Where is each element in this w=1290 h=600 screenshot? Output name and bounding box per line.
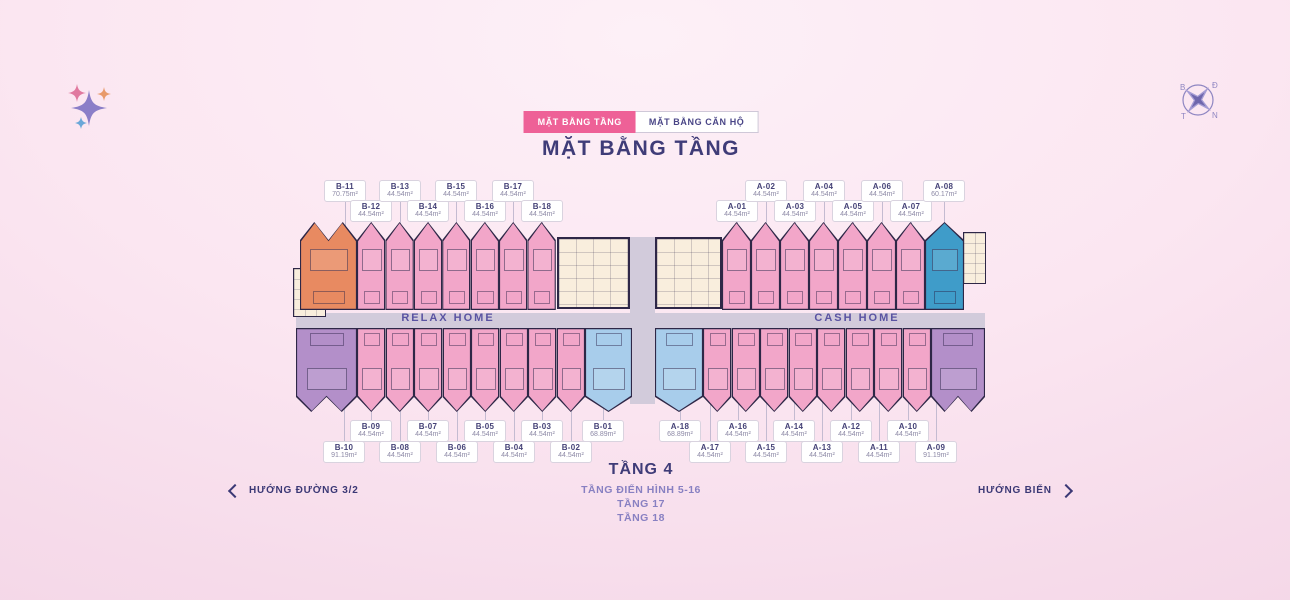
unit-area: 44.54m² [891,211,931,219]
unit-label-A-18[interactable]: A-1868.89m² [659,420,701,442]
unit-A-04[interactable] [809,222,838,310]
unit-fill [752,223,779,308]
unit-label-A-07[interactable]: A-0744.54m² [890,200,932,222]
unit-fill [761,329,787,410]
unit-label-A-12[interactable]: A-1244.54m² [830,420,872,442]
unit-fill [529,329,555,410]
label-leader-line [822,400,823,441]
unit-area: 91.19m² [324,452,364,460]
floor-line-18: TẦNG 18 [581,511,701,525]
unit-A-18[interactable] [655,328,703,412]
unit-fill [704,329,730,410]
unit-area: 91.19m² [916,452,956,460]
direction-sea-label: HƯỚNG BIỂN [978,485,1052,496]
unit-fill [656,329,702,410]
unit-B-13[interactable] [385,222,413,310]
current-floor-label: TẦNG 4 [581,461,701,479]
corridor-label-relax-home: RELAX HOME [401,312,494,324]
unit-area: 70.75m² [325,191,365,199]
tab-apartment-plan[interactable]: MẶT BẰNG CĂN HỘ [636,111,759,133]
unit-label-B-06[interactable]: B-0644.54m² [436,441,478,463]
unit-code: A-05 [833,202,873,211]
unit-code: A-14 [774,422,814,431]
unit-fill [810,223,837,308]
unit-code: A-01 [717,202,757,211]
floor-line-17: TẦNG 17 [581,497,701,511]
unit-fill [904,329,930,410]
unit-A-11[interactable] [874,328,903,412]
unit-code: B-05 [465,422,505,431]
unit-fill [301,223,356,308]
unit-fill [586,329,631,410]
floor-info: TẦNG 4 TẦNG ĐIỂN HÌNH 5-16 TẦNG 17 TẦNG … [581,461,701,525]
unit-code: B-18 [522,202,562,211]
unit-label-B-09[interactable]: B-0944.54m² [350,420,392,442]
unit-B-14[interactable] [414,222,442,310]
unit-code: A-16 [718,422,758,431]
unit-area: 44.54m² [380,452,420,460]
unit-code: A-13 [802,443,842,452]
unit-label-B-13[interactable]: B-1344.54m² [379,180,421,202]
unit-B-01[interactable] [585,328,632,412]
unit-area: 44.54m² [351,211,391,219]
unit-area: 44.54m² [862,191,902,199]
unit-B-12[interactable] [357,222,385,310]
direction-road: HƯỚNG ĐƯỜNG 3/2 [230,485,359,496]
unit-label-A-05[interactable]: A-0544.54m² [832,200,874,222]
unit-label-B-15[interactable]: B-1544.54m² [435,180,477,202]
unit-code: A-06 [862,182,902,191]
unit-code: A-03 [775,202,815,211]
unit-code: A-02 [746,182,786,191]
unit-code: B-06 [437,443,477,452]
unit-A-05[interactable] [838,222,867,310]
unit-fill [386,223,412,308]
unit-code: B-03 [522,422,562,431]
unit-label-A-09[interactable]: A-0991.19m² [915,441,957,463]
tab-floor-plan[interactable]: MẶT BẰNG TẦNG [524,111,636,133]
unit-label-A-06[interactable]: A-0644.54m² [861,180,903,202]
unit-area: 44.54m² [746,452,786,460]
corridor-vertical [630,237,655,404]
unit-label-B-03[interactable]: B-0344.54m² [521,420,563,442]
unit-area: 44.54m² [718,431,758,439]
unit-fill [868,223,895,308]
unit-code: A-18 [660,422,700,431]
unit-fill [818,329,844,410]
unit-fill [444,329,470,410]
unit-code: A-10 [888,422,928,431]
unit-label-A-14[interactable]: A-1444.54m² [773,420,815,442]
view-tabs: MẶT BẰNG TẦNG MẶT BẰNG CĂN HỘ [524,111,759,133]
unit-label-A-13[interactable]: A-1344.54m² [801,441,843,463]
unit-A-16[interactable] [732,328,761,412]
unit-fill [500,223,526,308]
unit-label-B-08[interactable]: B-0844.54m² [379,441,421,463]
unit-label-B-01[interactable]: B-0168.89m² [582,420,624,442]
unit-label-B-18[interactable]: B-1844.54m² [521,200,563,222]
unit-fill [528,223,554,308]
unit-fill [297,329,356,410]
unit-area: 68.89m² [660,431,700,439]
unit-B-02[interactable] [557,328,586,412]
unit-code: B-17 [493,182,533,191]
unit-A-17[interactable] [703,328,732,412]
unit-code: B-15 [436,182,476,191]
unit-A-08[interactable] [925,222,964,310]
core-block-right [655,237,722,309]
unit-A-03[interactable] [780,222,809,310]
unit-area: 44.54m² [408,211,448,219]
unit-label-A-15[interactable]: A-1544.54m² [745,441,787,463]
unit-code: A-09 [916,443,956,452]
unit-label-B-12[interactable]: B-1244.54m² [350,200,392,222]
unit-B-17[interactable] [499,222,527,310]
unit-A-12[interactable] [846,328,875,412]
unit-code: B-08 [380,443,420,452]
unit-area: 44.54m² [746,191,786,199]
unit-area: 44.54m² [522,211,562,219]
unit-B-07[interactable] [414,328,443,412]
unit-code: A-12 [831,422,871,431]
unit-area: 44.54m² [493,191,533,199]
unit-B-06[interactable] [443,328,472,412]
unit-area: 44.54m² [437,452,477,460]
unit-code: B-14 [408,202,448,211]
unit-A-02[interactable] [751,222,780,310]
unit-area: 44.54m² [551,452,591,460]
unit-code: B-16 [465,202,505,211]
unit-B-08[interactable] [386,328,415,412]
unit-fill [472,223,498,308]
unit-fill [897,223,924,308]
unit-B-10[interactable] [296,328,357,412]
unit-code: B-04 [494,443,534,452]
unit-code: B-13 [380,182,420,191]
unit-code: A-07 [891,202,931,211]
unit-label-A-01[interactable]: A-0144.54m² [716,200,758,222]
unit-code: B-12 [351,202,391,211]
unit-fill [781,223,808,308]
unit-fill [415,329,441,410]
unit-area: 44.54m² [831,431,871,439]
unit-label-A-04[interactable]: A-0444.54m² [803,180,845,202]
unit-code: B-01 [583,422,623,431]
unit-area: 44.54m² [436,191,476,199]
unit-area: 60.17m² [924,191,964,199]
unit-fill [358,223,384,308]
unit-B-11[interactable] [300,222,357,310]
unit-label-A-10[interactable]: A-1044.54m² [887,420,929,442]
unit-fill [472,329,498,410]
unit-code: B-02 [551,443,591,452]
unit-area: 44.54m² [494,452,534,460]
unit-area: 44.54m² [408,431,448,439]
chevron-left-icon [228,483,242,497]
unit-code: B-07 [408,422,448,431]
unit-code: B-11 [325,182,365,191]
unit-code: A-08 [924,182,964,191]
unit-B-05[interactable] [471,328,500,412]
direction-sea: HƯỚNG BIỂN [978,485,1071,496]
unit-area: 68.89m² [583,431,623,439]
unit-code: A-04 [804,182,844,191]
unit-area: 44.54m² [690,452,730,460]
unit-label-A-17[interactable]: A-1744.54m² [689,441,731,463]
unit-code: A-17 [690,443,730,452]
unit-code: B-10 [324,443,364,452]
chevron-right-icon [1059,483,1073,497]
unit-A-06[interactable] [867,222,896,310]
floor-line-typical: TẦNG ĐIỂN HÌNH 5-16 [581,483,701,497]
unit-label-B-07[interactable]: B-0744.54m² [407,420,449,442]
unit-label-B-10[interactable]: B-1091.19m² [323,441,365,463]
unit-label-B-05[interactable]: B-0544.54m² [464,420,506,442]
stair-block-right [963,232,986,284]
unit-area: 44.54m² [775,211,815,219]
page-title: MẶT BẰNG TẦNG [542,137,740,161]
unit-label-B-14[interactable]: B-1444.54m² [407,200,449,222]
label-leader-line [766,400,767,441]
direction-road-label: HƯỚNG ĐƯỜNG 3/2 [249,485,359,496]
unit-label-A-02[interactable]: A-0244.54m² [745,180,787,202]
unit-B-15[interactable] [442,222,470,310]
unit-A-09[interactable] [931,328,985,412]
unit-area: 44.54m² [717,211,757,219]
core-block-left [557,237,630,309]
unit-area: 44.54m² [522,431,562,439]
unit-label-A-03[interactable]: A-0344.54m² [774,200,816,222]
unit-B-16[interactable] [471,222,499,310]
unit-area: 44.54m² [380,191,420,199]
unit-B-04[interactable] [500,328,529,412]
unit-B-09[interactable] [357,328,386,412]
unit-label-B-17[interactable]: B-1744.54m² [492,180,534,202]
unit-fill [358,329,384,410]
unit-area: 44.54m² [888,431,928,439]
unit-label-B-04[interactable]: B-0444.54m² [493,441,535,463]
unit-area: 44.54m² [465,211,505,219]
unit-label-A-08[interactable]: A-0860.17m² [923,180,965,202]
unit-A-13[interactable] [817,328,846,412]
label-leader-line [936,400,937,441]
unit-fill [790,329,816,410]
unit-A-01[interactable] [722,222,751,310]
unit-fill [875,329,901,410]
label-leader-line [710,400,711,441]
unit-area: 44.54m² [833,211,873,219]
unit-A-10[interactable] [903,328,932,412]
unit-code: A-15 [746,443,786,452]
unit-fill [733,329,759,410]
unit-fill [558,329,584,410]
unit-A-15[interactable] [760,328,789,412]
unit-fill [847,329,873,410]
unit-B-03[interactable] [528,328,557,412]
unit-fill [926,223,963,308]
unit-code: A-11 [859,443,899,452]
unit-fill [501,329,527,410]
unit-A-07[interactable] [896,222,925,310]
unit-label-A-16[interactable]: A-1644.54m² [717,420,759,442]
unit-area: 44.54m² [859,452,899,460]
unit-label-B-11[interactable]: B-1170.75m² [324,180,366,202]
unit-fill [932,329,984,410]
unit-area: 44.54m² [351,431,391,439]
label-leader-line [879,400,880,441]
unit-A-14[interactable] [789,328,818,412]
unit-label-B-16[interactable]: B-1644.54m² [464,200,506,222]
unit-label-A-11[interactable]: A-1144.54m² [858,441,900,463]
unit-B-18[interactable] [527,222,555,310]
unit-area: 44.54m² [774,431,814,439]
unit-area: 44.54m² [804,191,844,199]
unit-fill [387,329,413,410]
unit-fill [839,223,866,308]
unit-area: 44.54m² [802,452,842,460]
unit-fill [723,223,750,308]
corridor-label-cash-home: CASH HOME [814,312,899,324]
unit-fill [443,223,469,308]
unit-code: B-09 [351,422,391,431]
unit-fill [415,223,441,308]
unit-area: 44.54m² [465,431,505,439]
unit-label-B-02[interactable]: B-0244.54m² [550,441,592,463]
